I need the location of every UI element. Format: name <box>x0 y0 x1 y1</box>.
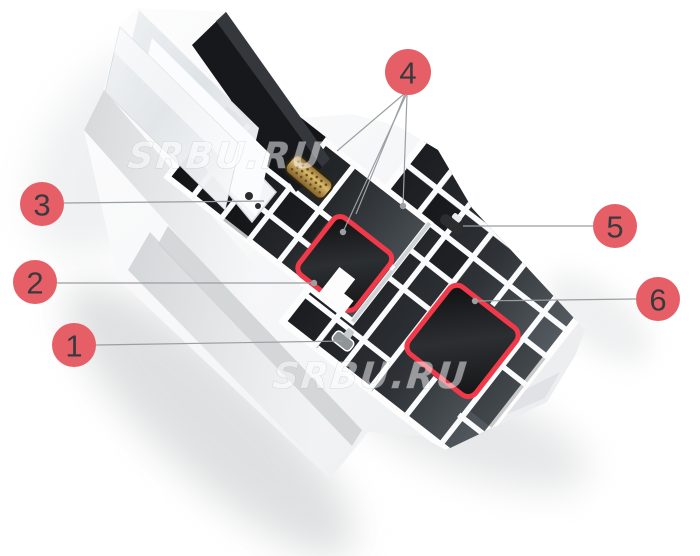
cutaway-scene: SRBU.RU SRBU.RU 123456 <box>0 0 700 556</box>
callout-number-1: 1 <box>65 329 82 364</box>
watermark-text: SRBU.RU <box>126 135 325 177</box>
glass-gasket <box>245 192 253 200</box>
glass-gasket <box>255 203 261 209</box>
watermark-text: SRBU.RU <box>271 355 470 397</box>
callout-number-2: 2 <box>26 266 43 301</box>
callout-number-5: 5 <box>606 210 623 245</box>
callout-number-3: 3 <box>33 188 50 223</box>
leader-dot <box>340 229 346 235</box>
window-profile-cutaway-figure: SRBU.RU SRBU.RU 123456 <box>0 0 700 556</box>
callout-number-6: 6 <box>649 283 666 318</box>
callout-number-4: 4 <box>399 56 416 91</box>
leader-dot <box>311 280 317 286</box>
leader-dot <box>400 203 406 209</box>
leader-dot <box>472 298 478 304</box>
